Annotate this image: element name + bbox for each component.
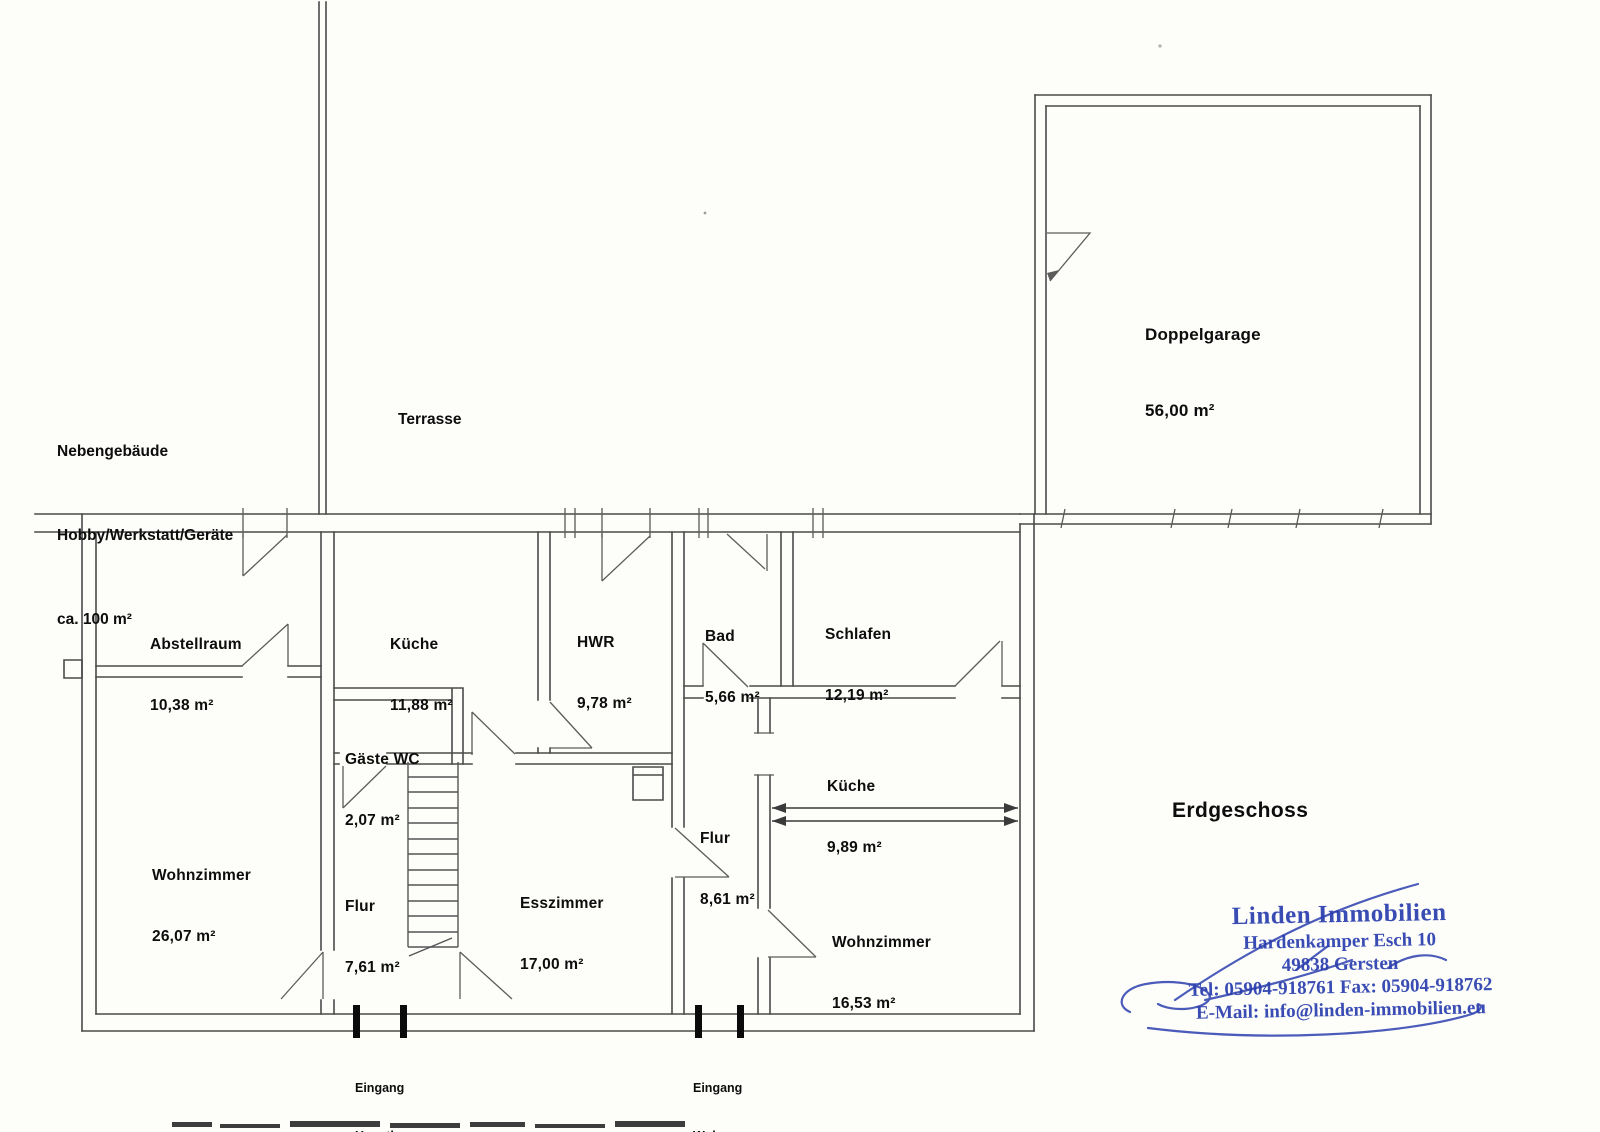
room-label-schlafen: Schlafen 12,19 m² bbox=[825, 585, 891, 746]
outbuilding-line2: Hobby/Werkstatt/Geräte bbox=[57, 522, 233, 550]
entrance-apartment-label: Eingang Wohnung bbox=[693, 1048, 750, 1132]
floorplan-page: Nebengebäude Hobby/Werkstatt/Geräte ca. … bbox=[0, 0, 1600, 1132]
room-name: Doppelgarage bbox=[1145, 322, 1261, 347]
room-area: 2,07 m² bbox=[345, 811, 420, 831]
room-name: Schlafen bbox=[825, 625, 891, 645]
room-area: 12,19 m² bbox=[825, 686, 891, 706]
room-label-esszimmer: Esszimmer 17,00 m² bbox=[520, 854, 604, 1015]
room-name: Gäste WC bbox=[345, 750, 420, 770]
entrance-apartment-line1: Eingang bbox=[693, 1080, 750, 1096]
room-name: Esszimmer bbox=[520, 894, 604, 914]
room-name: Küche bbox=[827, 777, 882, 797]
room-name: Wohnzimmer bbox=[152, 866, 251, 886]
room-area: 16,53 m² bbox=[832, 994, 931, 1014]
entrance-main-line1: Eingang bbox=[355, 1080, 420, 1096]
room-label-wohnzimmer-haupthaus: Wohnzimmer 26,07 m² bbox=[152, 826, 251, 987]
dimension-arrows bbox=[772, 803, 1018, 826]
room-area: 9,78 m² bbox=[577, 694, 632, 714]
room-name: Flur bbox=[700, 829, 755, 849]
room-area: 9,89 m² bbox=[827, 838, 882, 858]
room-area: 10,38 m² bbox=[150, 696, 242, 716]
room-label-doppelgarage: Doppelgarage 56,00 m² bbox=[1145, 272, 1261, 473]
room-label-gaeste-wc: Gäste WC 2,07 m² bbox=[345, 710, 420, 871]
room-name: Flur bbox=[345, 897, 400, 917]
entrance-apartment-line2: Wohnung bbox=[693, 1128, 750, 1132]
room-name: Bad bbox=[705, 627, 760, 647]
entrance-main-label: Eingang Haupthaus bbox=[355, 1048, 420, 1132]
room-name: Abstellraum bbox=[150, 635, 242, 655]
room-area: 17,00 m² bbox=[520, 955, 604, 975]
terrace-label: Terrasse bbox=[398, 411, 461, 429]
room-label-flur-haupthaus: Flur 7,61 m² bbox=[345, 857, 400, 1018]
outbuilding-line1: Nebengebäude bbox=[57, 438, 233, 466]
room-area: 7,61 m² bbox=[345, 958, 400, 978]
room-name: HWR bbox=[577, 633, 632, 653]
entrance-main-line2: Haupthaus bbox=[355, 1128, 420, 1132]
room-name: Küche bbox=[390, 635, 453, 655]
floor-title: Erdgeschoss bbox=[1172, 799, 1308, 823]
jamb-ticks bbox=[243, 508, 1383, 538]
room-area: 56,00 m² bbox=[1145, 398, 1261, 423]
room-label-abstellraum: Abstellraum 10,38 m² bbox=[150, 595, 242, 756]
room-label-wohnzimmer-wohnung: Wohnzimmer 16,53 m² bbox=[832, 893, 931, 1054]
room-name: Wohnzimmer bbox=[832, 933, 931, 953]
room-area: 5,66 m² bbox=[705, 688, 760, 708]
room-label-hwr: HWR 9,78 m² bbox=[577, 593, 632, 754]
room-label-bad: Bad 5,66 m² bbox=[705, 587, 760, 748]
room-area: 8,61 m² bbox=[700, 890, 755, 910]
room-label-flur-wohnung: Flur 8,61 m² bbox=[700, 789, 755, 950]
room-area: 26,07 m² bbox=[152, 927, 251, 947]
company-stamp: Linden Immobilien Hardenkamper Esch 10 4… bbox=[1127, 896, 1553, 1026]
room-label-kueche-wohnung: Küche 9,89 m² bbox=[827, 737, 882, 898]
